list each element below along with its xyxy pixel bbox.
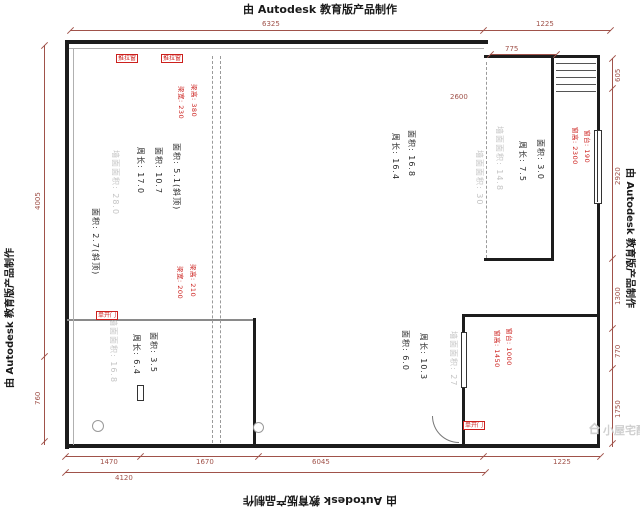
stair-line xyxy=(556,84,596,85)
door-swing-arc xyxy=(432,416,459,443)
room-bottomleft-perimeter: 周长: 6.4 xyxy=(132,334,141,375)
wall-left xyxy=(65,40,69,449)
dim-left-1: 4005 xyxy=(34,192,42,210)
stair-line xyxy=(556,91,596,92)
dim-right-2: 2920 xyxy=(614,167,622,185)
dim-tick xyxy=(597,453,604,460)
dim-bottom-1: 1470 xyxy=(100,458,118,466)
column-symbol xyxy=(137,385,144,401)
dim-line-left xyxy=(44,45,45,445)
dim-line-right xyxy=(612,58,613,447)
beam-dashed-line-1 xyxy=(212,56,213,443)
room-left-wall-area: 墙面面积: 28.0 xyxy=(111,150,120,215)
wall-face-line-top xyxy=(69,48,484,49)
dim-line-top xyxy=(70,30,611,31)
beam-top-width-label: 梁宽: 230 xyxy=(177,86,184,119)
fixture-tag-window-2: 推拉窗 xyxy=(161,54,183,63)
wall-inner-horizontal-right xyxy=(484,258,554,261)
brand-logo-text: 小屋宅配 xyxy=(603,422,640,438)
dim-bottom-4: 1225 xyxy=(553,458,571,466)
fixture-tag-door-2: 单开门 xyxy=(463,421,485,430)
house-icon xyxy=(588,422,601,438)
wall-face-line-left xyxy=(73,48,74,445)
room-bottomleft-area: 面积: 3.5 xyxy=(149,332,158,373)
watermark-right: 由 Autodesk 教育版产品制作 xyxy=(624,168,639,308)
window-bottomright-height-label: 窗高: 1450 xyxy=(493,330,500,368)
beam-mid-height-label: 梁高: 210 xyxy=(189,264,196,297)
window-right-mullion xyxy=(597,130,598,202)
fixture-tag-window-1: 推拉窗 xyxy=(116,54,138,63)
watermark-bottom: 由 Autodesk 教育版产品制作 xyxy=(0,493,640,509)
wall-bottom xyxy=(65,444,600,448)
beam-top-height-label: 梁高: 380 xyxy=(190,84,197,117)
dim-left-2: 760 xyxy=(34,392,42,405)
floorplan-canvas: 由 Autodesk 教育版产品制作 由 Autodesk 教育版产品制作 由 … xyxy=(0,0,640,512)
wall-bottomright-top xyxy=(462,314,600,317)
stair-line xyxy=(556,63,596,64)
dim-top-3: 775 xyxy=(505,45,518,53)
window-topright-height-label: 窗高: 2300 xyxy=(571,127,578,165)
dim-inner: 2600 xyxy=(450,93,468,101)
dim-right-3: 1300 xyxy=(614,287,622,305)
room-topright-perimeter: 周长: 7.5 xyxy=(518,141,527,182)
fixture-tag-door-1: 单开门 xyxy=(96,311,118,320)
dim-bottom-5: 4120 xyxy=(115,474,133,482)
room-topright-wall-area: 墙面面积: 14.8 xyxy=(495,126,504,191)
watermark-left: 由 Autodesk 教育版产品制作 xyxy=(1,248,16,388)
wall-right xyxy=(597,55,600,448)
room-left-area-sloped2: 面积: 2.7(斜顶) xyxy=(91,208,100,275)
wall-top-right xyxy=(484,55,600,58)
dim-line-bottom-1 xyxy=(65,456,600,457)
window-topright-sill-label: 窗台: 190 xyxy=(583,130,590,163)
dim-bottom-3: 6045 xyxy=(312,458,330,466)
beam-mid-width-label: 梁宽: 200 xyxy=(176,266,183,299)
room-left-area: 面积: 10.7 xyxy=(154,147,163,194)
dim-line-775 xyxy=(490,54,556,55)
dim-bottom-2: 1670 xyxy=(196,458,214,466)
window-bottom-right xyxy=(461,332,467,388)
pipe-symbol-2 xyxy=(253,422,264,433)
window-bottomright-sill-label: 窗台: 1000 xyxy=(505,328,512,366)
pipe-symbol-1 xyxy=(92,420,104,432)
room-center-perimeter: 周长: 16.4 xyxy=(391,133,400,180)
dim-tick xyxy=(482,469,489,476)
beam-dashed-line-2 xyxy=(220,56,221,443)
beam-dashed-line-3 xyxy=(486,62,487,258)
dim-top-1: 6325 xyxy=(262,20,280,28)
stair-line xyxy=(556,70,596,71)
dim-right-5: 1750 xyxy=(614,400,622,418)
wall-inner-vertical-right xyxy=(551,58,554,261)
room-bottomright-perimeter: 周长: 10.3 xyxy=(419,333,428,380)
dim-tick xyxy=(607,27,614,34)
wall-top xyxy=(65,40,488,44)
room-bottomleft-wall-area: 墙面面积: 16.8 xyxy=(109,318,118,383)
room-bottomright-wall-area: 墙面面积: 27 xyxy=(449,331,458,386)
dim-right-1: 605 xyxy=(614,69,622,82)
room-left-perimeter: 周长: 17.0 xyxy=(136,147,145,194)
dim-line-bottom-2 xyxy=(65,472,485,473)
room-topright-area: 面积: 3.0 xyxy=(536,139,545,180)
room-bottomright-area: 面积: 6.0 xyxy=(401,330,410,371)
dim-right-4: 770 xyxy=(614,345,622,358)
room-left-area-sloped: 面积: 5.1(斜顶) xyxy=(172,143,181,210)
stair-line xyxy=(556,77,596,78)
window-right xyxy=(594,130,602,204)
watermark-top: 由 Autodesk 教育版产品制作 xyxy=(0,1,640,17)
brand-logo: 小屋宅配 xyxy=(588,422,640,438)
dim-top-2: 1225 xyxy=(536,20,554,28)
room-center-area: 面积: 16.8 xyxy=(407,130,416,177)
room-center-wall-area: 墙面面积: 30 xyxy=(475,150,484,205)
